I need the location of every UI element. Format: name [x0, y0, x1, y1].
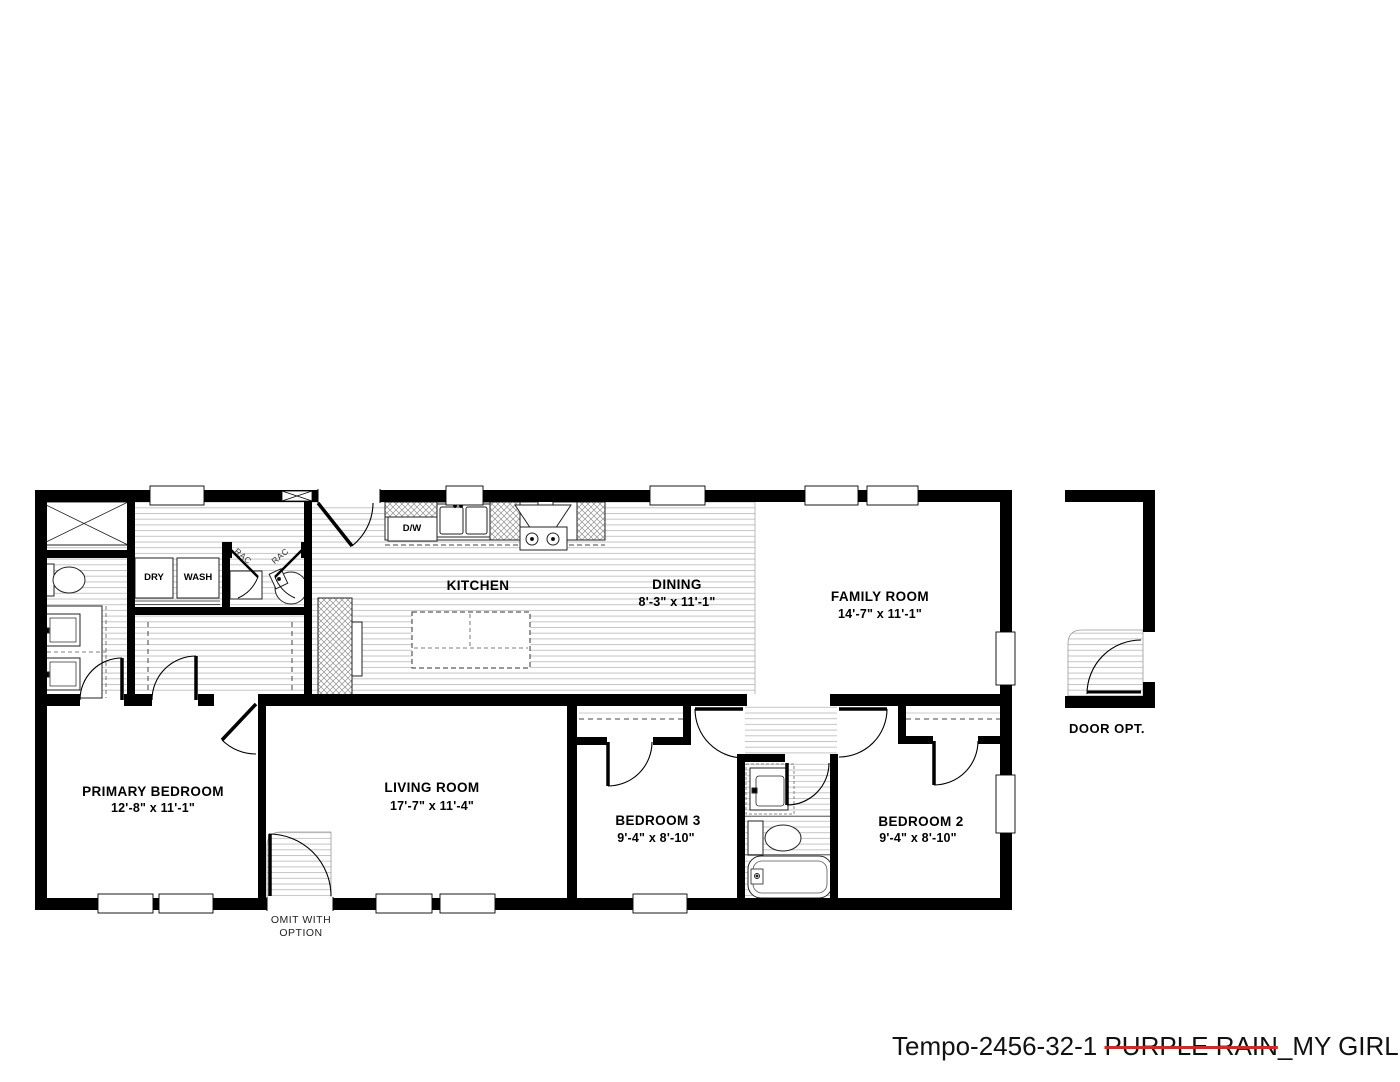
floorplan-drawing	[0, 0, 1400, 1082]
bedroom3-door	[695, 709, 744, 758]
room-dims-living-room: 17'-7" x 11'-4"	[390, 799, 474, 813]
bedroom3-closet-door	[608, 742, 652, 786]
room-label-family-room: FAMILY ROOM	[831, 589, 929, 604]
shower	[40, 502, 128, 545]
omit-note-line2: OPTION	[279, 927, 322, 939]
room-label-dining: DINING	[652, 577, 702, 592]
kitchen-sink	[437, 504, 490, 537]
room-label-bedroom3: BEDROOM 3	[615, 813, 700, 828]
room-label-primary-bedroom: PRIMARY BEDROOM	[82, 784, 224, 799]
plan-title: Tempo-2456-32-1 PURPLE RAIN_MY GIRL	[892, 1031, 1399, 1062]
washer-label: WASH	[184, 572, 213, 583]
room-dims-bedroom3: 9'-4" x 8'-10"	[617, 831, 695, 845]
room-dims-family-room: 14'-7" x 11'-1"	[838, 607, 922, 621]
bedroom2-door	[839, 709, 887, 757]
bathtub	[748, 856, 832, 898]
omit-note-line1: OMIT WITH	[271, 914, 331, 926]
plan-title-prefix: Tempo-2456-32-1	[892, 1031, 1104, 1061]
room-label-living-room: LIVING ROOM	[384, 780, 479, 795]
door-opt-label: DOOR OPT.	[1069, 721, 1145, 736]
vanity-primary	[40, 606, 106, 698]
bedroom2-closet-door	[934, 741, 978, 785]
room-dims-dining: 8'-3" x 11'-1"	[639, 595, 716, 609]
room-dims-bedroom2: 9'-4" x 8'-10"	[879, 831, 957, 845]
door-opt-wall-top	[1065, 490, 1155, 502]
primary-bedroom-door	[222, 704, 256, 754]
plan-title-suffix: _MY GIRL	[1278, 1031, 1399, 1061]
room-dims-primary-bedroom: 12'-8" x 11'-1"	[111, 801, 195, 815]
door-opt-wall-right	[1143, 490, 1155, 632]
room-label-kitchen: KITCHEN	[447, 578, 510, 593]
plan-title-strikethrough: PURPLE RAIN	[1104, 1031, 1277, 1061]
dishwasher-label: D/W	[403, 523, 421, 534]
room-label-bedroom2: BEDROOM 2	[878, 814, 963, 829]
dryer-label: DRY	[144, 572, 164, 583]
door-opt-wall-bottom	[1065, 696, 1155, 708]
attic-vent-marker	[282, 491, 312, 501]
kitchen-island	[412, 612, 530, 668]
floorplan-page: KITCHEN DINING 8'-3" x 11'-1" FAMILY ROO…	[0, 0, 1400, 1082]
